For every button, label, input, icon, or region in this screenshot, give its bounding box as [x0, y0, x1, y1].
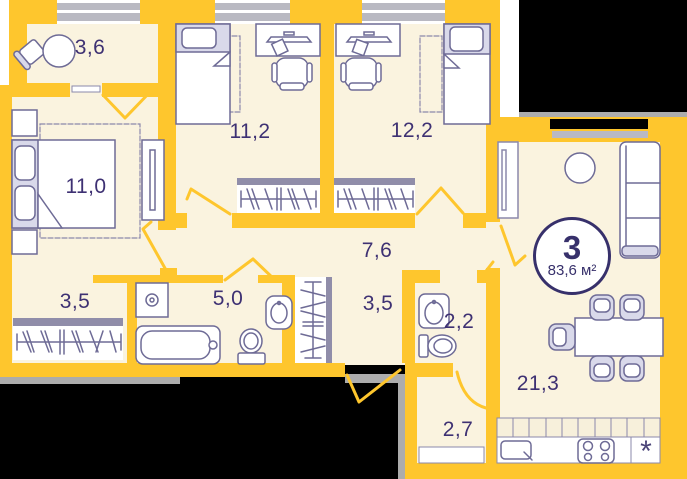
sink-icon	[266, 296, 292, 329]
wardrobe-icon	[334, 178, 415, 213]
apartment-badge: 3 83,6 м²	[533, 217, 611, 295]
nightstand-icon	[12, 230, 37, 254]
pouf-icon	[43, 35, 75, 67]
bathroom-door-swing	[225, 259, 275, 280]
bathroom-area-label: 5,0	[213, 287, 243, 311]
pillow-icon	[15, 146, 35, 180]
sofa-icon	[620, 142, 660, 258]
fridge-symbol: *	[640, 447, 652, 457]
bathtub-icon	[136, 326, 220, 364]
entrance-door-swing	[347, 370, 400, 402]
hall2-area-label: 3,5	[363, 292, 393, 316]
rooms-count: 3	[563, 233, 581, 263]
balcony-door-swing	[103, 90, 152, 118]
armchair-icon	[13, 37, 47, 71]
toilet-icon	[238, 329, 265, 364]
wc-area-label: 2,2	[444, 310, 474, 334]
rug-icon	[420, 36, 442, 112]
wardrobe-icon	[237, 178, 320, 213]
bedroom3-area-label: 12,2	[391, 119, 433, 143]
dining-chair-icon	[590, 356, 614, 381]
bedroom3-door-swing	[417, 188, 463, 214]
hob-icon	[578, 439, 614, 463]
round-table-icon	[565, 153, 595, 183]
dresser-icon	[142, 140, 164, 220]
kitchen-area-label: 21,3	[517, 372, 559, 396]
pillow-icon	[15, 186, 35, 220]
pantry-door-swing	[457, 372, 486, 408]
kitchen-sink-icon	[501, 441, 532, 460]
pantry-area-label: 2,7	[443, 418, 473, 442]
desk-chair-icon	[341, 58, 381, 90]
bedroom1-area-label: 11,0	[66, 175, 107, 199]
total-area: 83,6 м²	[548, 263, 597, 279]
bedroom2-area-label: 11,2	[230, 120, 271, 144]
nightstand-icon	[12, 110, 37, 136]
hallway-area-label: 7,6	[362, 239, 392, 263]
toilet-icon	[419, 335, 456, 357]
bedroom2-door-swing	[187, 189, 230, 214]
bedroom1-door-swing	[143, 222, 166, 270]
dining-chair-icon	[620, 356, 644, 381]
radiator-icon	[498, 142, 518, 218]
washing-machine-icon	[136, 283, 168, 317]
closet-area-label: 3,5	[60, 290, 90, 314]
wardrobe-closet-icon	[13, 318, 123, 360]
dining-chair-icon	[590, 295, 614, 320]
desk-icon	[336, 24, 400, 56]
desk-icon	[256, 24, 320, 56]
balcony-area-label: 3,6	[75, 36, 105, 60]
single-bed-icon	[176, 24, 230, 124]
hall-wardrobe-icon	[295, 277, 332, 363]
floor-plan: 3,6 11,0 11,2 12,2 7,6 3,5 5,0 3,5 2,2 2…	[0, 0, 687, 479]
dining-chair-icon	[549, 324, 575, 350]
door-leaf	[72, 86, 100, 92]
single-bed-icon	[444, 24, 490, 124]
wc-door-swing	[479, 262, 493, 280]
desk-chair-icon	[272, 58, 312, 90]
dining-table-icon	[575, 318, 663, 356]
pantry-shelf	[419, 447, 484, 463]
kitchen-door-swing	[501, 226, 525, 265]
dining-chair-icon	[620, 295, 644, 320]
